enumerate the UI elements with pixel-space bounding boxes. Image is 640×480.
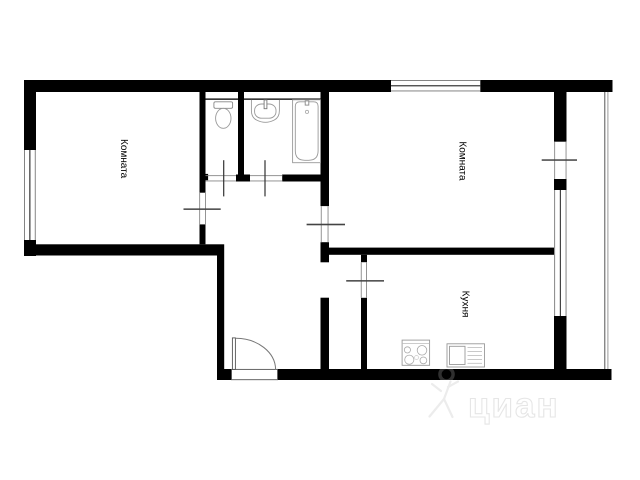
svg-text:Комната: Комната [118, 139, 129, 179]
svg-text:Кухня: Кухня [460, 291, 471, 318]
svg-text:циан: циан [468, 386, 560, 425]
svg-text:Комната: Комната [457, 141, 468, 181]
